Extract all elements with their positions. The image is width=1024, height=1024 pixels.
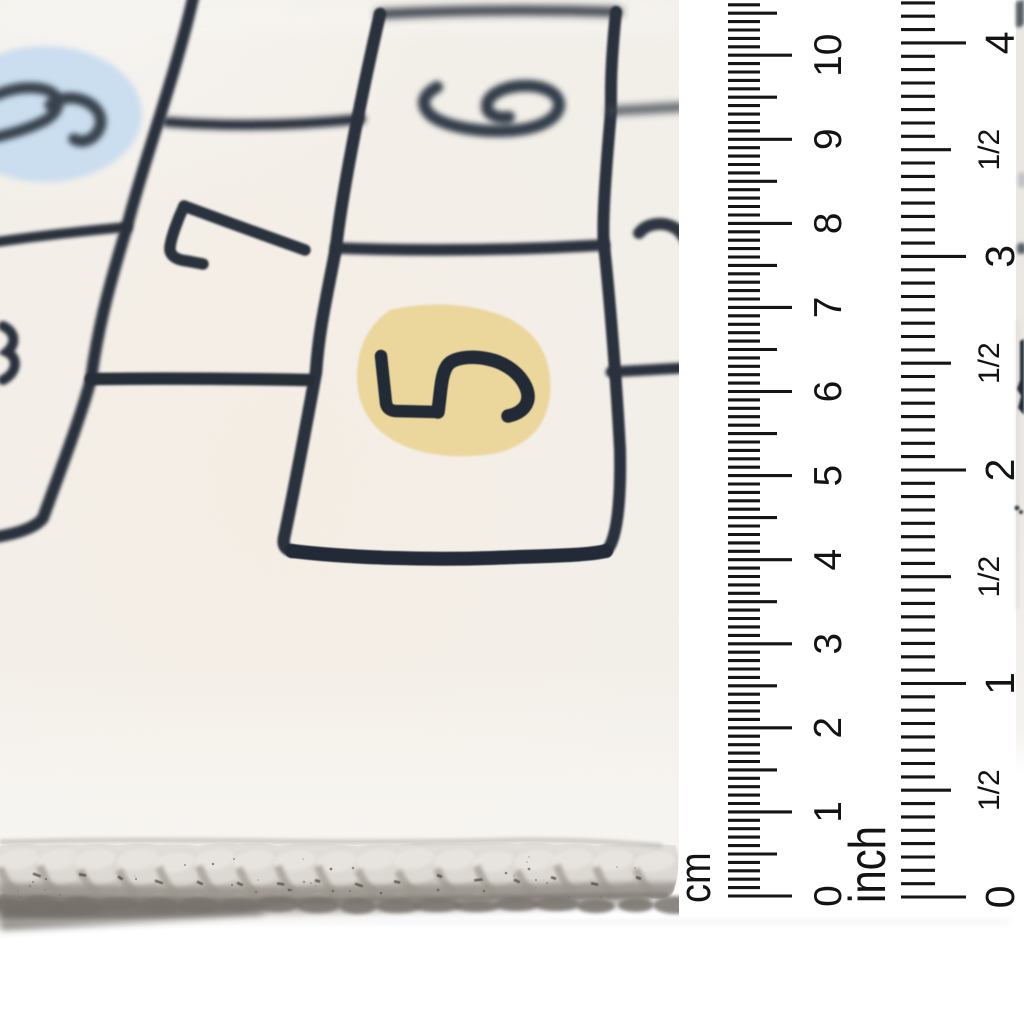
svg-text:4: 4 (807, 549, 850, 571)
svg-text:0: 0 (977, 886, 1023, 909)
svg-text:1/2: 1/2 (973, 556, 1006, 598)
svg-text:10: 10 (807, 34, 850, 77)
svg-text:9: 9 (807, 128, 850, 150)
svg-text:cm: cm (671, 852, 720, 903)
svg-text:8: 8 (807, 213, 850, 235)
svg-text:1/2: 1/2 (973, 342, 1006, 384)
svg-text:1/2: 1/2 (973, 769, 1006, 811)
svg-text:1: 1 (807, 801, 850, 823)
svg-text:2: 2 (807, 717, 850, 739)
svg-text:7: 7 (807, 297, 850, 319)
svg-text:3: 3 (807, 633, 850, 655)
svg-text:1/2: 1/2 (973, 129, 1006, 171)
svg-text:inch: inch (838, 826, 896, 903)
svg-text:6: 6 (807, 381, 850, 403)
svg-text:5: 5 (807, 465, 850, 487)
